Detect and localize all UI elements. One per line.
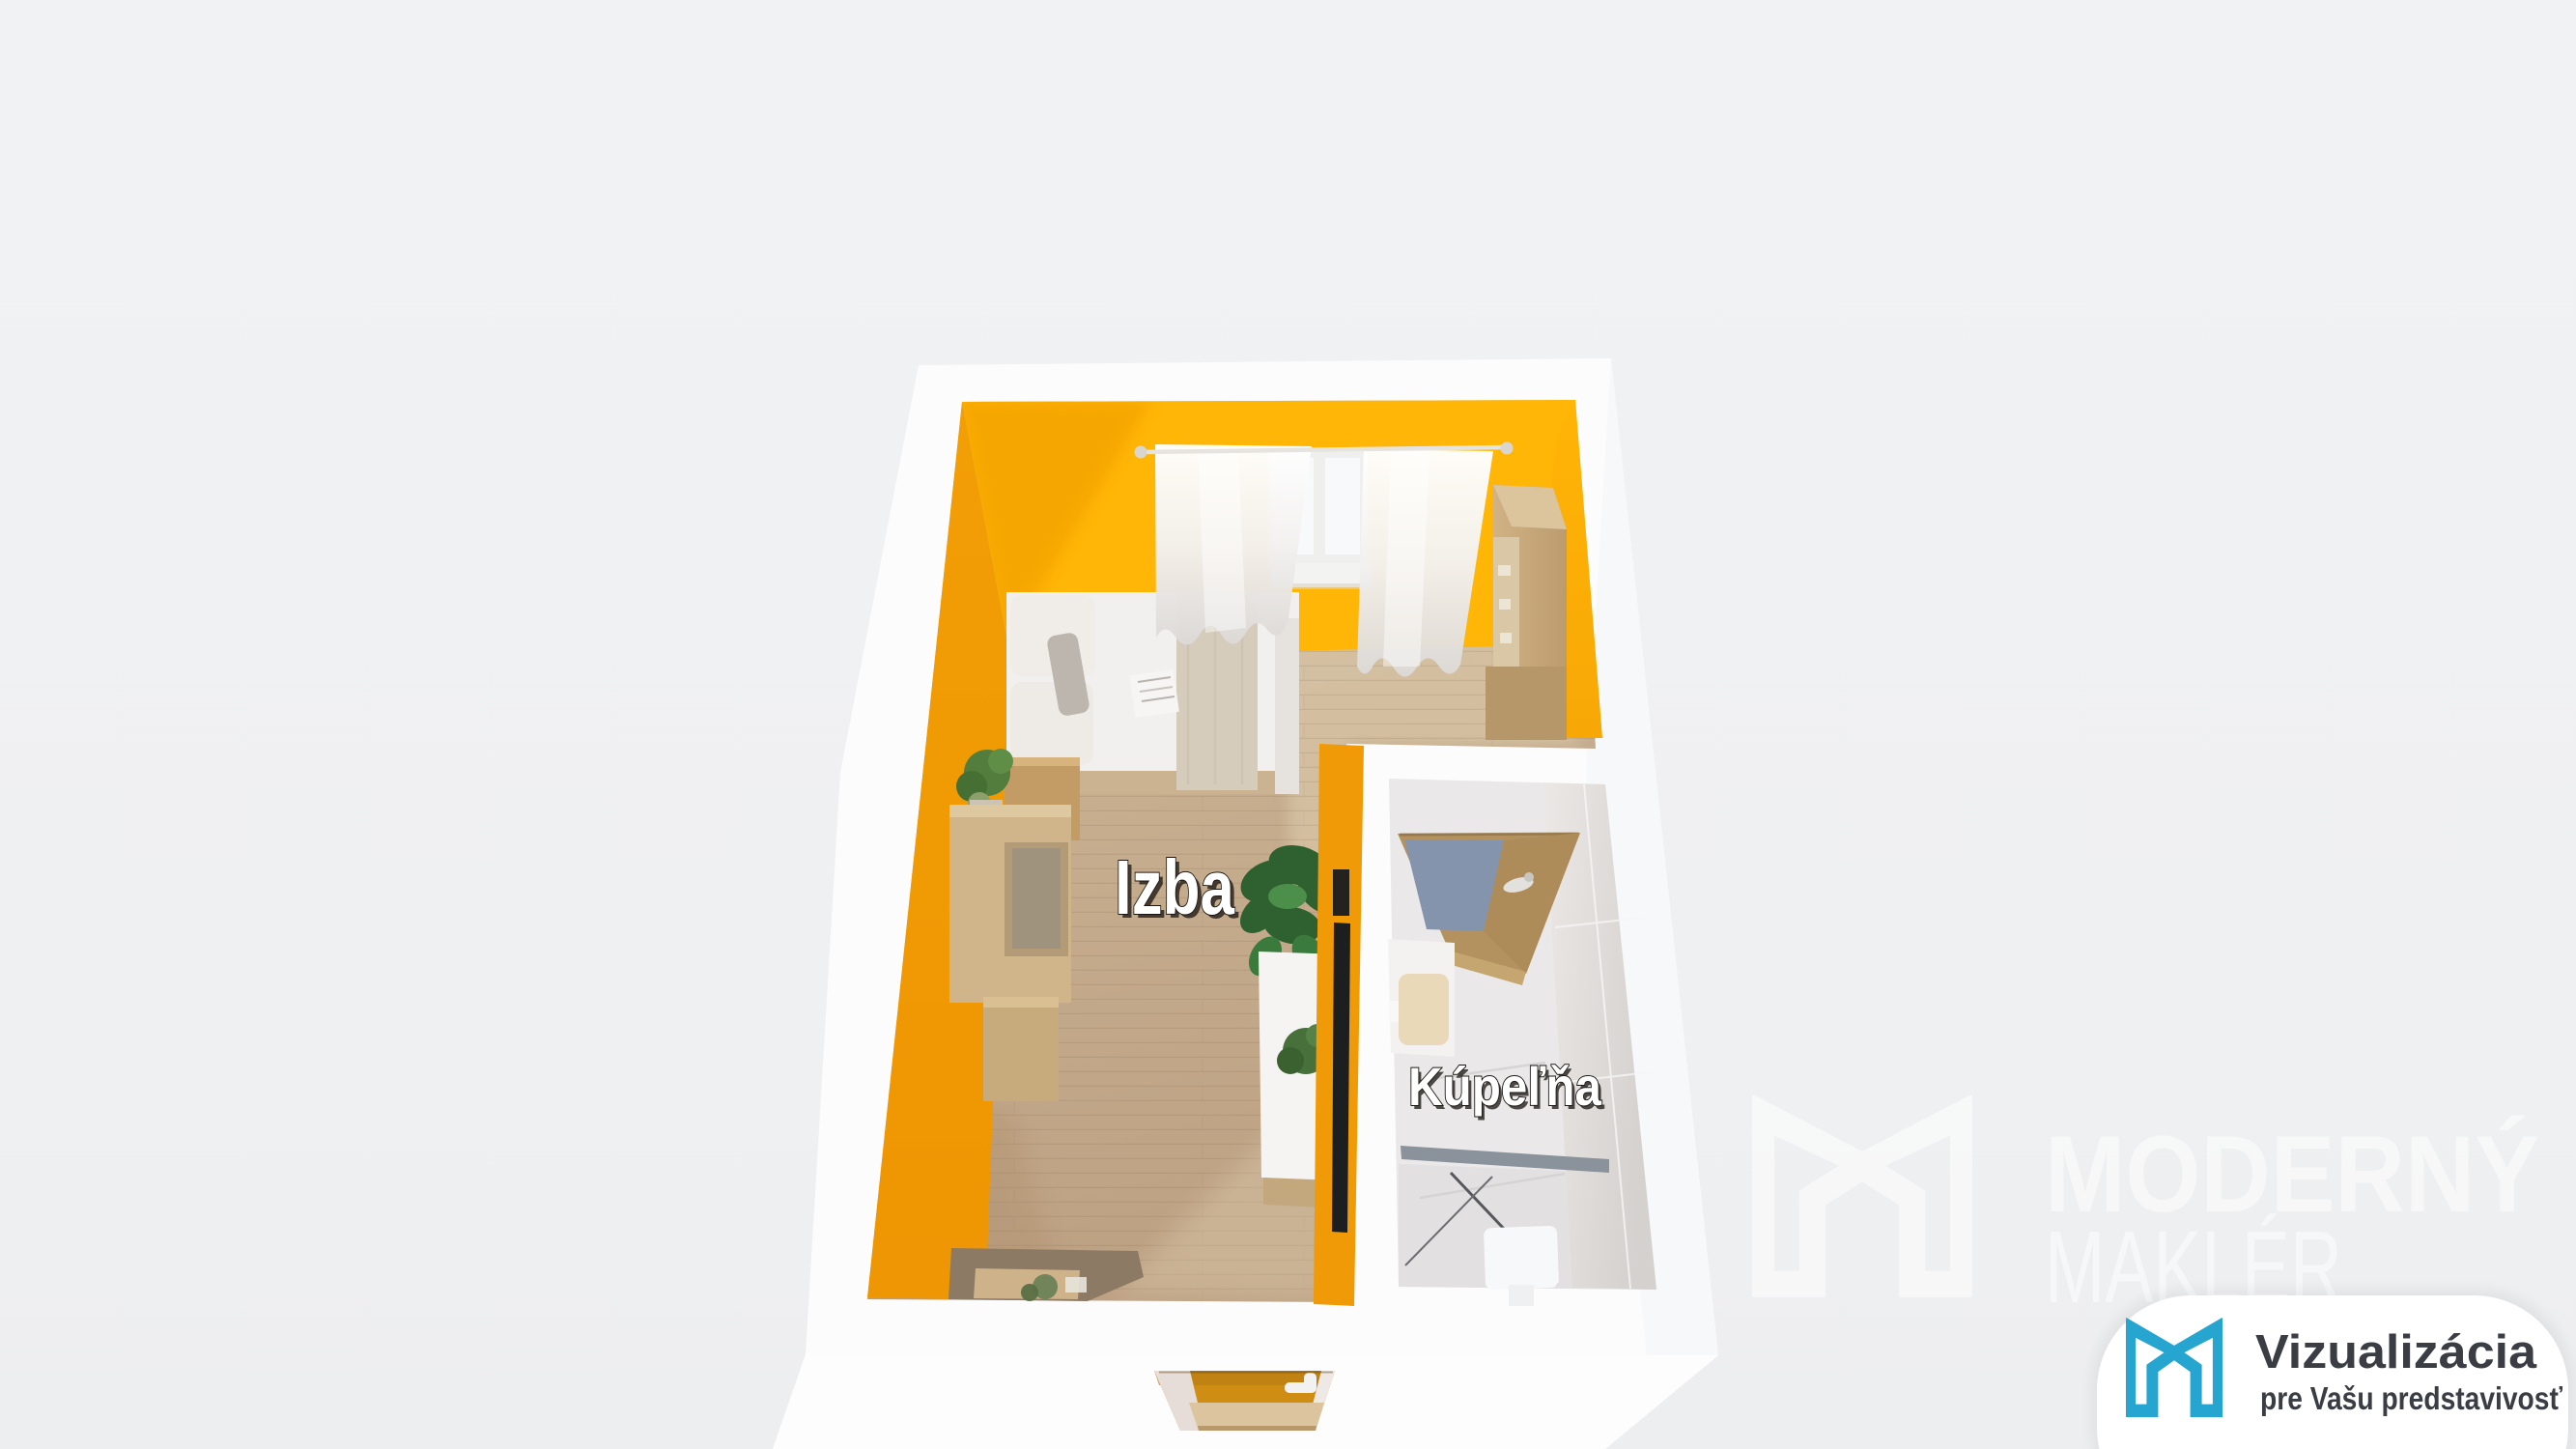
svg-text:Vizualizácia: Vizualizácia — [2255, 1326, 2537, 1378]
svg-text:Izba: Izba — [1115, 844, 1234, 930]
svg-text:pre Vašu predstavivosť: pre Vašu predstavivosť — [2260, 1380, 2562, 1416]
svg-text:Kúpeľňa: Kúpeľňa — [1408, 1056, 1602, 1117]
